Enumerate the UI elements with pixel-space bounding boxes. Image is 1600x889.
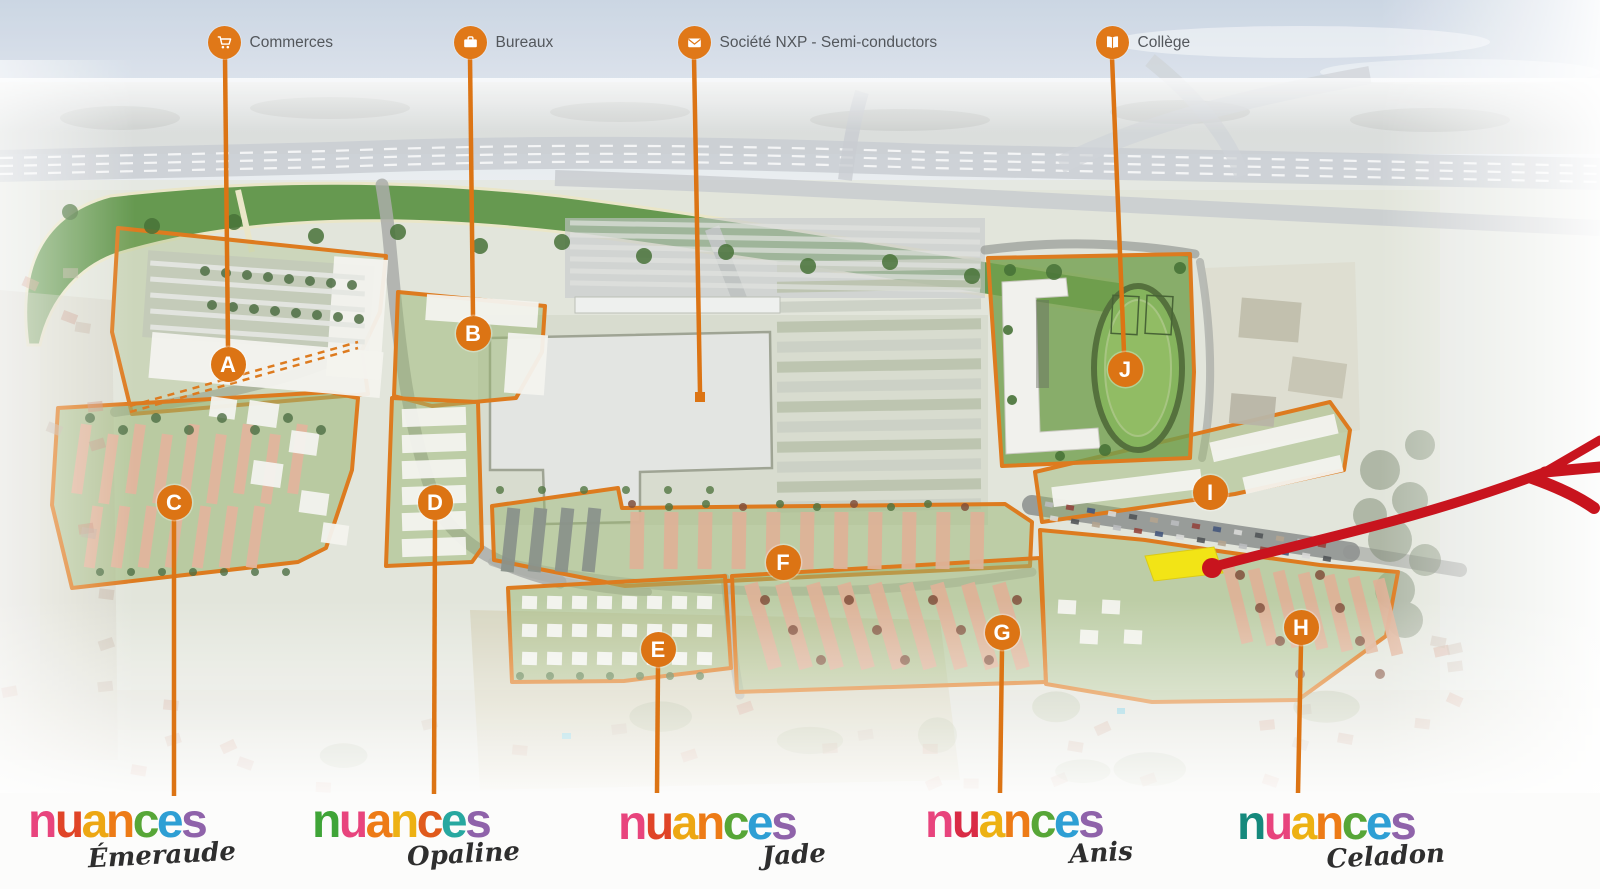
brand-letter: n <box>390 795 417 848</box>
legend-label: Collège <box>1138 34 1191 52</box>
zone-marker-d: D <box>418 485 453 520</box>
brand-letter: a <box>366 795 390 848</box>
masterplan-map <box>0 0 1600 889</box>
zone-marker-e: E <box>641 632 676 667</box>
brand-letter: n <box>1237 797 1264 850</box>
zone-marker-f: F <box>766 545 801 580</box>
brand-letter: n <box>312 795 339 848</box>
legend-item: Société NXP - Semi-conductors <box>678 26 938 59</box>
envelope-icon <box>678 26 711 59</box>
zone-marker-a: A <box>211 347 246 382</box>
brand-letter: n <box>925 795 952 848</box>
nxp-pointer-dot <box>695 392 705 402</box>
brand-letter: u <box>645 797 672 850</box>
brand-letter: u <box>952 795 979 848</box>
brand-letter: n <box>618 797 645 850</box>
logo-nuances-anis: nuancesAnis <box>925 798 1137 872</box>
brand-letter: a <box>979 795 1003 848</box>
brand-letter: n <box>1003 795 1030 848</box>
masterplan-page: CommercesBureauxSociété NXP - Semi-condu… <box>0 0 1600 889</box>
brand-letter: a <box>82 795 106 848</box>
legend-item: Commerces <box>208 26 334 59</box>
brand-letter: u <box>1264 797 1291 850</box>
zone-marker-j: J <box>1108 352 1143 387</box>
legend-item: Collège <box>1096 26 1191 59</box>
brand-letter: n <box>1315 797 1342 850</box>
brand-letter: n <box>28 795 55 848</box>
zone-marker-c: C <box>157 485 192 520</box>
legend-label: Société NXP - Semi-conductors <box>720 34 938 52</box>
brand-letter: a <box>672 797 696 850</box>
logo-nuances-jade: nuancesJade <box>618 800 830 874</box>
shopping-cart-icon <box>208 26 241 59</box>
zone-marker-h: H <box>1284 610 1319 645</box>
brand-letter: u <box>339 795 366 848</box>
logo-nuances-celadon: nuancesCeladon <box>1237 800 1449 874</box>
zone-marker-b: B <box>456 316 491 351</box>
open-book-icon <box>1096 26 1129 59</box>
brand-letter: a <box>1291 797 1315 850</box>
logo-nuances-émeraude: nuancesÉmeraude <box>28 798 240 872</box>
brand-letter: u <box>55 795 82 848</box>
haze <box>0 0 1600 889</box>
legend-label: Commerces <box>250 34 334 52</box>
zone-marker-g: G <box>985 615 1020 650</box>
brand-letter: n <box>106 795 133 848</box>
zone-marker-i: I <box>1193 475 1228 510</box>
logo-nuances-opaline: nuancesOpaline <box>312 798 524 872</box>
legend-label: Bureaux <box>496 34 554 52</box>
legend-item: Bureaux <box>454 26 554 59</box>
briefcase-icon <box>454 26 487 59</box>
brand-letter: n <box>696 797 723 850</box>
